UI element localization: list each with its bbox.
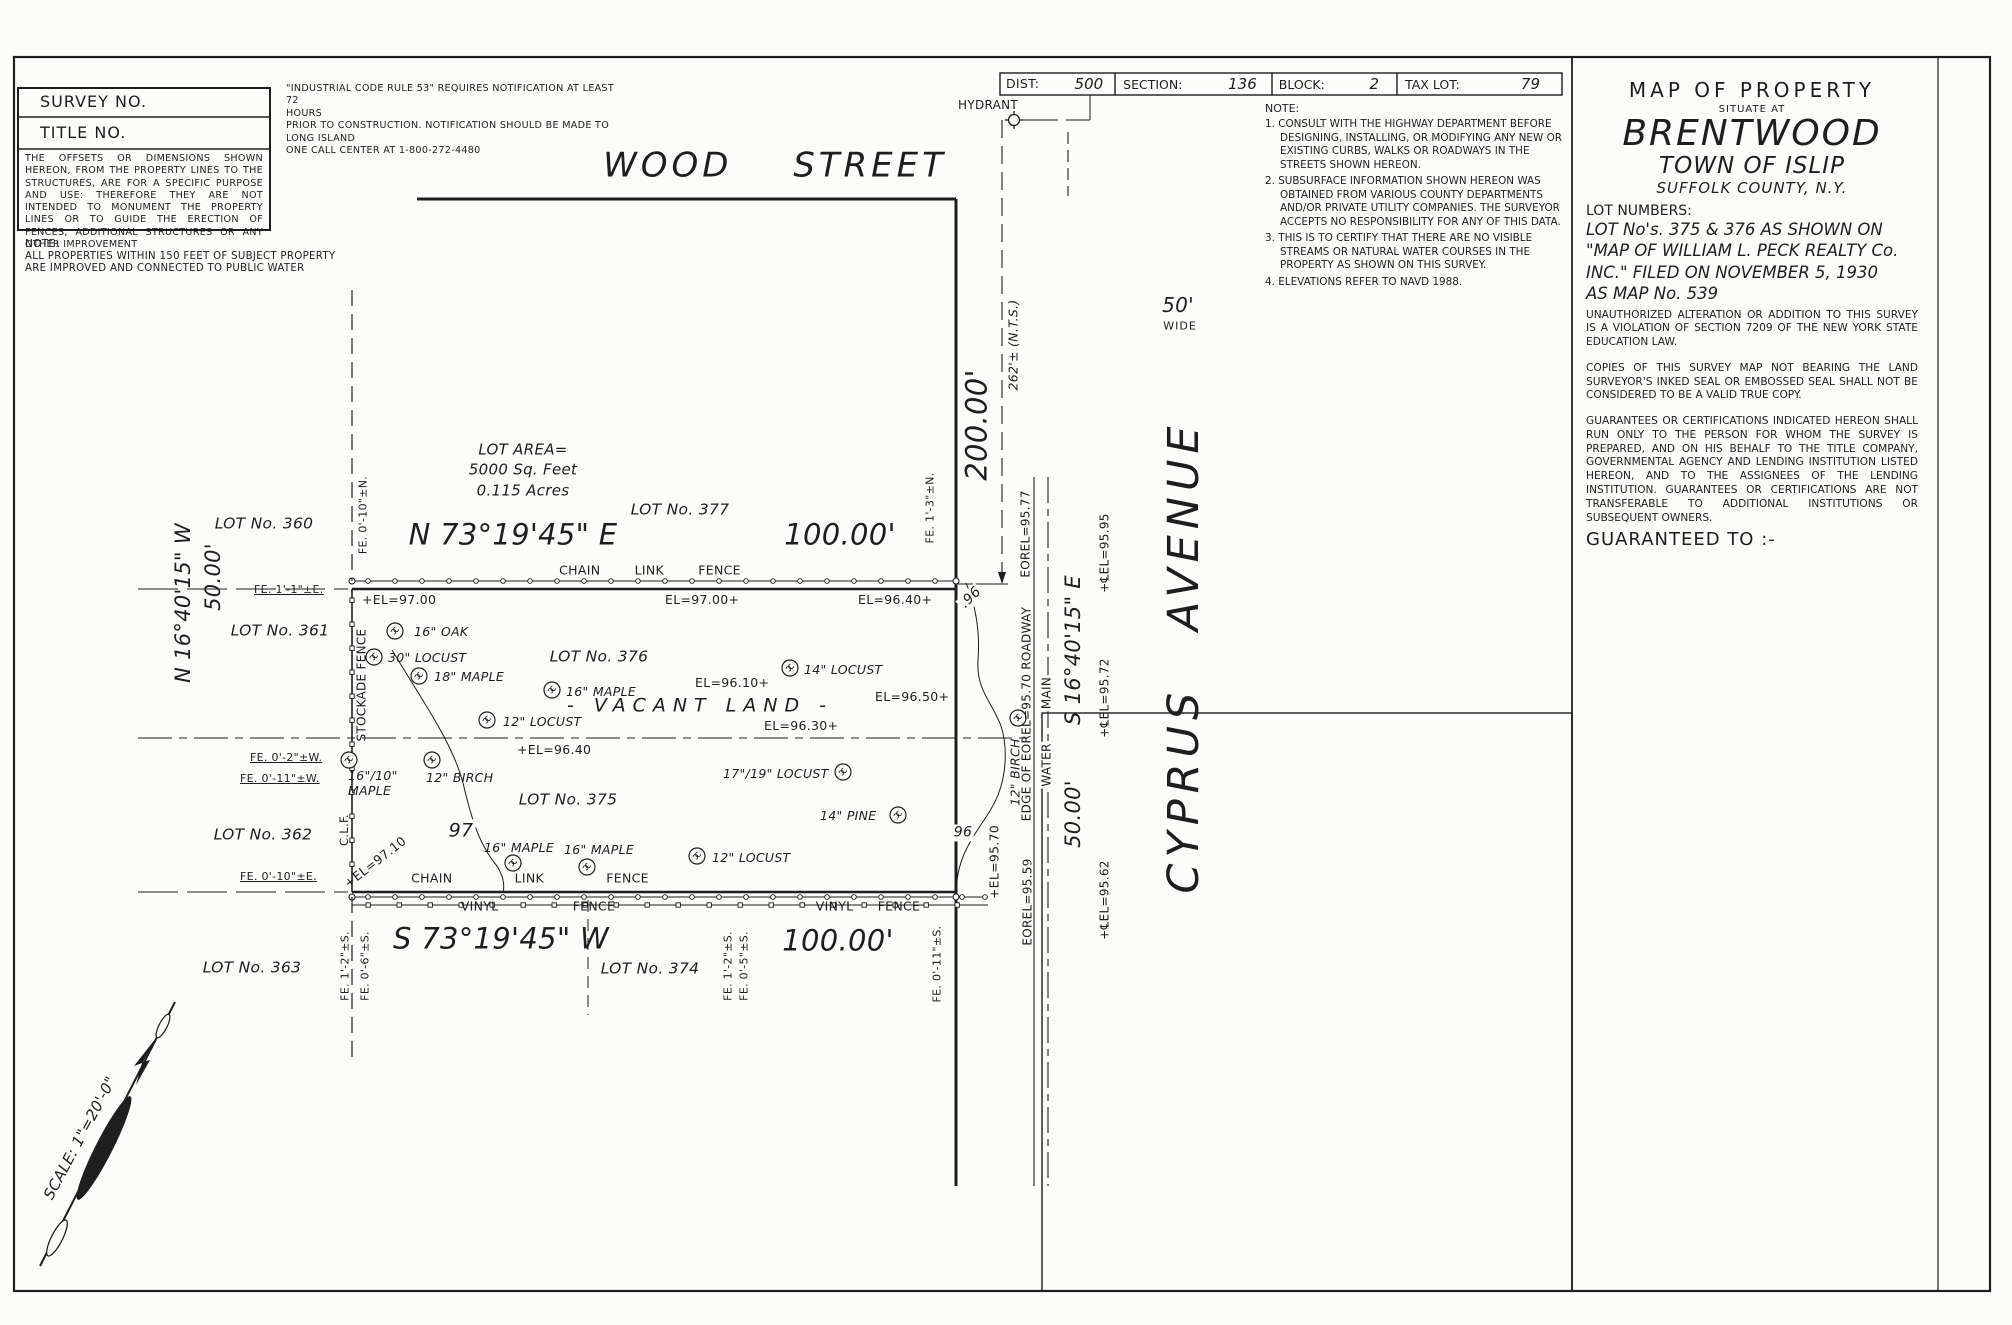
elevation-label: EL=96.40+ [858,592,932,607]
county-name: SUFFOLK COUNTY, N.Y. [1586,179,1918,197]
tree-label: 18" MAPLE [434,669,504,684]
lot-numbers-label: LOT NUMBERS: [1586,203,1918,219]
town-name: TOWN OF ISLIP [1586,153,1918,179]
survey-no-label: SURVEY NO. [40,92,147,112]
elevation-label: EL=96.10+ [695,675,769,690]
fence-type-label: VINYL FENCE [816,898,921,913]
elevation-label: EL=97.00+ [665,592,739,607]
lot-numbers-text: LOT No's. 375 & 376 AS SHOWN ON "MAP OF … [1586,219,1918,305]
tax-bar: DIST: 500 SECTION: 136 BLOCK: 2 TAX LOT:… [1000,73,1562,95]
lot-label-363: LOT No. 363 [203,959,302,978]
north-arrow-icon [40,1002,175,1266]
fence-offset-label: FE. 1'-2"±S. [721,931,734,1001]
fence-offset-label: FE. 1'-1"±E. [254,583,324,596]
dist-label: DIST: [1006,76,1039,91]
revision-box [1042,713,1572,1291]
offsets-note: THE OFFSETS OR DIMENSIONS SHOWN HEREON, … [25,153,263,251]
hydrant-label: HYDRANT [958,98,1018,113]
lot-label-362: LOT No. 362 [214,826,313,845]
survey-note-item: 1. CONSULT WITH THE HIGHWAY DEPARTMENT B… [1265,118,1565,172]
nts-distance: 262'± (N.T.S.) [1005,299,1020,390]
title-no-label: TITLE NO. [40,123,126,143]
alteration-paragraph: UNAUTHORIZED ALTERATION OR ADDITION TO T… [1586,309,1918,350]
tree-label: 16" OAK [414,624,468,639]
tree-label: 12" LOCUST [503,714,582,729]
fence-type-label: CHAIN LINK FENCE [411,870,649,885]
survey-sheet: SURVEY NO. TITLE NO. THE OFFSETS OR DIME… [0,0,2012,1325]
lot-label-374: LOT No. 374 [601,960,700,979]
roadway-elevation-label: EOREL=95.59 [1021,858,1036,945]
contour-label-97: 97 [447,819,476,842]
fence-offset-label: FE. 0'-10"±E. [240,870,317,883]
water-main-label: MAIN [1040,675,1055,711]
fence-type-label: CHAIN LINK FENCE [559,562,741,577]
lot-label-361: LOT No. 361 [231,622,330,641]
lot-label-360: LOT No. 360 [215,515,314,534]
lot-label-375: LOT No. 375 [519,791,618,810]
fence-type-label: STOCKADE FENCE [355,629,370,742]
fence-offset-label: FE. 1'-2"±S. [338,931,351,1001]
street-wide-label: WIDE [1163,319,1197,332]
street-label-cyprus: CYPRUS AVENUE [1158,420,1210,893]
lot-label-376: LOT No. 376 [550,648,649,667]
frontage-distance: 200.00' [959,369,994,481]
tree-label: 16"/10" MAPLE [348,768,398,799]
edge-of-roadway-label: EDGE OF EOREL=95.70 ROADWAY [1020,607,1035,821]
water-main-label: WATER [1040,741,1055,788]
guarantees-paragraph: GUARANTEES OR CERTIFICATIONS INDICATED H… [1586,415,1918,525]
tree-label: 12" LOCUST [712,850,791,865]
tree-label: 17"/19" LOCUST [723,766,829,781]
elevation-label: +EL=96.40 [517,742,591,757]
section-label: SECTION: [1123,77,1182,92]
tax-lot-label: TAX LOT: [1405,77,1460,92]
guaranteed-to-label: GUARANTEED TO :- [1586,529,1918,550]
survey-note-item: 3. THIS IS TO CERTIFY THAT THERE ARE NO … [1265,232,1565,273]
tree-label: 16" MAPLE [484,840,554,855]
survey-notes: NOTE: 1. CONSULT WITH THE HIGHWAY DEPART… [1265,102,1565,292]
bearing-west: N 16°40'15" W [171,523,197,683]
street-width-label: 50' [1162,293,1194,317]
survey-note-item: 4. ELEVATIONS REFER TO NAVD 1988. [1265,276,1565,290]
tree-label: 14" LOCUST [804,662,883,677]
bearing-south: S 73°19'45" W [393,921,609,956]
centerline-elevation-label: +℄EL=95.72 [1098,658,1113,737]
centerline-elevation-label: +℄EL=95.62 [1098,860,1113,939]
elevation-label: EL=96.30+ [764,718,838,733]
tree-label: 30" LOCUST [388,650,467,665]
block-value: 2 [1370,75,1380,93]
tree-label: 12" BIRCH [426,770,493,785]
lot-area-label: LOT AREA= 5000 Sq. Feet 0.115 Acres [469,440,577,501]
fence-offset-label: FE. 0'-6"±S. [358,931,371,1001]
street-label-wood: WOOD STREET [603,145,947,186]
industrial-code-note: "INDUSTRIAL CODE RULE 53" REQUIRES NOTIF… [286,83,616,158]
copies-paragraph: COPIES OF THIS SURVEY MAP NOT BEARING TH… [1586,362,1918,403]
distance-north: 100.00' [784,517,896,552]
fence-offset-label: FE. 0'-5"±S. [737,931,750,1001]
fence-type-label: C.L.F. [337,814,351,846]
water-note: ALL PROPERTIES WITHIN 150 FEET OF SUBJEC… [25,251,335,276]
contour-label-96: 96 [952,824,974,841]
city-name: BRENTWOOD [1586,115,1918,153]
block-label: BLOCK: [1279,77,1325,92]
fence-offset-label: FE. 1'-3"±N. [923,473,936,544]
survey-notes-label: NOTE: [1265,102,1565,116]
title-block: MAP OF PROPERTY SITUATE AT BRENTWOOD TOW… [1586,78,1918,550]
elevation-label: +EL=97.00 [362,592,436,607]
lot-label-377: LOT No. 377 [631,501,730,520]
distance-east: 50.00' [1061,780,1087,848]
centerline-elevation-label: +℄EL=95.95 [1098,513,1113,592]
bearing-east: S 16°40'15" E [1061,575,1087,725]
fence-offset-label: FE. 0'-10"±N. [356,476,369,554]
roadway-elevation-label: EOREL=95.77 [1019,490,1034,577]
section-value: 136 [1228,75,1257,93]
distance-west: 50.00' [201,543,227,611]
water-note-label: NOTE: [25,238,59,251]
hydrant-icon [1005,111,1023,129]
fence-offset-label: FE. 0'-2"±W. [250,751,322,764]
tax-lot-value: 79 [1521,75,1540,93]
fence-offset-label: FE. 0'-11"±W. [240,772,320,785]
elevation-label: +EL=95.70 [986,825,1001,899]
tree-label: 16" MAPLE [564,842,634,857]
tree-label: 16" MAPLE [566,684,636,699]
map-of-property-title: MAP OF PROPERTY [1586,78,1918,102]
survey-note-item: 2. SUBSURFACE INFORMATION SHOWN HEREON W… [1265,175,1565,229]
tree-label: 14" PINE [820,808,877,823]
elevation-label: EL=96.50+ [875,689,949,704]
bearing-north: N 73°19'45" E [409,517,618,552]
fence-type-label: VINYL FENCE [461,898,616,913]
distance-south: 100.00' [782,923,894,958]
dist-value: 500 [1075,75,1104,93]
fence-offset-label: FE. 0'-11"±S. [930,926,943,1003]
